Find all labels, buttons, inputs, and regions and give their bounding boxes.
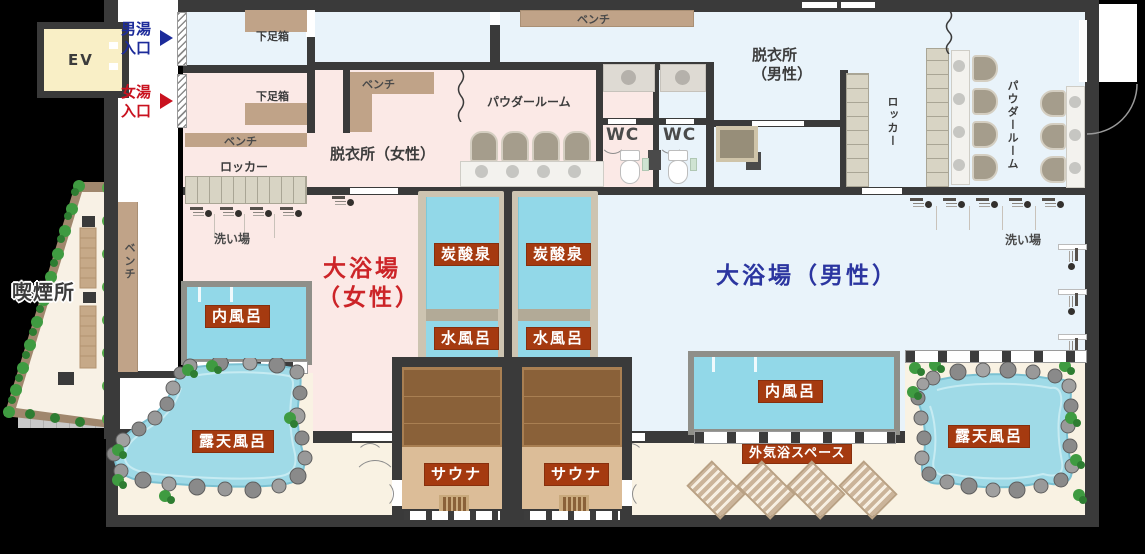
outdoor-door-arc [352, 460, 398, 506]
wall-right [1085, 0, 1099, 527]
mens-bath-door-mark [862, 188, 902, 194]
womens-entrance-label: 女湯 入口 [121, 83, 151, 121]
mens-top-bench-label: ベンチ [577, 11, 610, 27]
smoking-area-label: 喫煙所 [12, 276, 75, 305]
shoe-cabinet-womens [245, 103, 307, 125]
outdoor-air-space-label: 外気浴スペース [742, 444, 852, 464]
shoe-box-womens-label: 下足箱 [256, 88, 289, 104]
womens-bath-door-mark [350, 188, 398, 194]
mens-bath-title: 大浴場（男性） [716, 262, 898, 291]
powder-chair [972, 121, 998, 148]
toilet-panel [642, 158, 649, 171]
powder-chair [563, 131, 591, 162]
sink [953, 126, 965, 138]
toilet-women [618, 150, 642, 184]
ev-door-mark [109, 63, 118, 70]
mens-wash-basin [716, 126, 758, 162]
womens-l-bench-v [350, 94, 372, 132]
womens-l-bench-label: ベンチ [362, 76, 395, 92]
mens-washing-label: 洗い場 [1005, 231, 1041, 248]
shower-station-icon [332, 196, 354, 210]
mens-dressing-label: 脱衣所 （男性） [752, 46, 812, 84]
sink [1069, 96, 1081, 108]
shower-station-icon [190, 207, 212, 221]
washing-divider [1035, 206, 1036, 230]
womens-bath-title: 大浴場 （女性） [323, 255, 421, 313]
wall-wc-right [706, 62, 714, 195]
wc-sink [675, 70, 690, 85]
powder-chair [1040, 156, 1066, 183]
wc1-door-mark [608, 119, 636, 124]
bath-jet [230, 287, 233, 302]
womens-tub-divider [426, 309, 498, 321]
mens-entrance-label: 男湯 入口 [121, 20, 151, 58]
washing-divider [936, 206, 937, 230]
bath-jet [754, 357, 757, 372]
mens-cold-bath-label: 水風呂 [526, 327, 591, 350]
mens-corridor-door-mark [490, 12, 500, 25]
womens-locker [185, 176, 307, 204]
sauna-threshold [404, 511, 500, 520]
mens-locker-2 [926, 48, 949, 187]
powder-room-men-label: パウダールーム [1004, 80, 1020, 171]
sauna-men-benches [522, 367, 622, 447]
corridor-bench [118, 202, 138, 372]
wc-sink [621, 70, 636, 85]
wall-shoe-right [307, 36, 315, 133]
washing-divider [274, 214, 275, 238]
washing-divider [1002, 206, 1003, 230]
sink [953, 60, 965, 72]
womens-washing-label: 洗い場 [214, 230, 250, 247]
womens-carbonated-label: 炭酸泉 [434, 243, 499, 266]
powder-chair [972, 154, 998, 181]
shower-station-icon [976, 198, 998, 212]
wall-stub-bench [343, 70, 350, 133]
shower-station-icon [943, 198, 965, 212]
powder-chair [470, 131, 498, 162]
top-door-mark [802, 2, 837, 8]
toilet-men [666, 150, 690, 184]
womens-entrance-arrow-icon [160, 93, 173, 109]
mens-inner-door-mark [752, 121, 804, 126]
wall-shoe-divider [183, 65, 307, 73]
sauna-women-label: サウナ [424, 463, 489, 486]
shower-station-icon [1042, 198, 1064, 212]
sauna-door-mark [622, 480, 632, 506]
toilet-panel [690, 158, 697, 171]
smoking-area [0, 176, 118, 434]
shower-station-icon [220, 207, 242, 221]
mens-carbonated-label: 炭酸泉 [526, 243, 591, 266]
womens-dressing-label: 脱衣所（女性） [330, 143, 435, 164]
wc-service-block [648, 150, 661, 170]
mens-openair-label: 露天風呂 [948, 425, 1030, 448]
mens-indoor-bath-label: 内風呂 [758, 380, 823, 403]
sink [953, 93, 965, 105]
powder-chair [972, 55, 998, 82]
sink [1069, 129, 1081, 141]
top-door-mark [841, 2, 875, 8]
corridor-bench-label: ベンチ [121, 242, 137, 281]
mens-locker-label: ロッカー [884, 96, 900, 148]
powder-room-women-label: パウダールーム [487, 93, 571, 110]
womens-openair-label: 露天風呂 [192, 430, 274, 453]
right-wall-door-mark [1079, 20, 1087, 82]
curtain-squiggle-women [456, 70, 466, 122]
sink [475, 165, 488, 178]
elevator-label: EV [68, 51, 94, 69]
elevator: EV [37, 22, 129, 98]
womens-dressing-bench-label: ベンチ [224, 133, 257, 149]
wall-bath-divider [183, 187, 1085, 195]
stair-door [1099, 4, 1137, 82]
womens-indoor-bath-label: 内風呂 [205, 305, 270, 328]
shower-station-icon [1064, 248, 1078, 270]
sink [1069, 162, 1081, 174]
womens-outdoor-door-mark [352, 433, 396, 441]
sauna-threshold [524, 511, 620, 520]
stair-door-arc [1085, 82, 1141, 138]
bathhouse-floor-plan: EV 男湯 入口 女湯 入口 ベンチ 下足箱 下足箱 ベンチ ベンチ ロッカー … [0, 0, 1145, 554]
wc2-door-mark [666, 119, 694, 124]
sink [568, 165, 581, 178]
shoe-box-mens-label: 下足箱 [256, 28, 289, 44]
bath-jet [198, 287, 201, 302]
accordion-door-mens [177, 12, 187, 66]
womens-cold-bath-label: 水風呂 [434, 327, 499, 350]
powder-chair [532, 131, 560, 162]
mens-indoor-bath-fence [694, 431, 896, 444]
ev-door-mark [109, 42, 118, 49]
mens-tub-divider [518, 309, 590, 321]
shower-station-icon [250, 207, 272, 221]
accordion-door-womens [177, 74, 187, 128]
powder-chair [1040, 90, 1066, 117]
shower-station-icon [1009, 198, 1031, 212]
powder-chair [1040, 123, 1066, 150]
sink [506, 165, 519, 178]
sauna-women-benches [402, 367, 502, 447]
shower-station-icon [280, 207, 302, 221]
mens-entrance-arrow-icon [160, 30, 173, 46]
shower-station-icon [1064, 293, 1078, 315]
mens-locker-1 [846, 73, 869, 187]
womens-locker-label: ロッカー [220, 158, 268, 175]
shoe-door-mark [306, 10, 315, 37]
shower-station-icon [910, 198, 932, 212]
washing-divider [969, 206, 970, 230]
powder-chair [972, 88, 998, 115]
sink [537, 165, 550, 178]
powder-chair [501, 131, 529, 162]
curtain-squiggle-men [944, 10, 954, 54]
sauna-door-arc [632, 480, 660, 508]
bath-jet [712, 357, 715, 372]
sauna-men-label: サウナ [544, 463, 609, 486]
sink [953, 159, 965, 171]
